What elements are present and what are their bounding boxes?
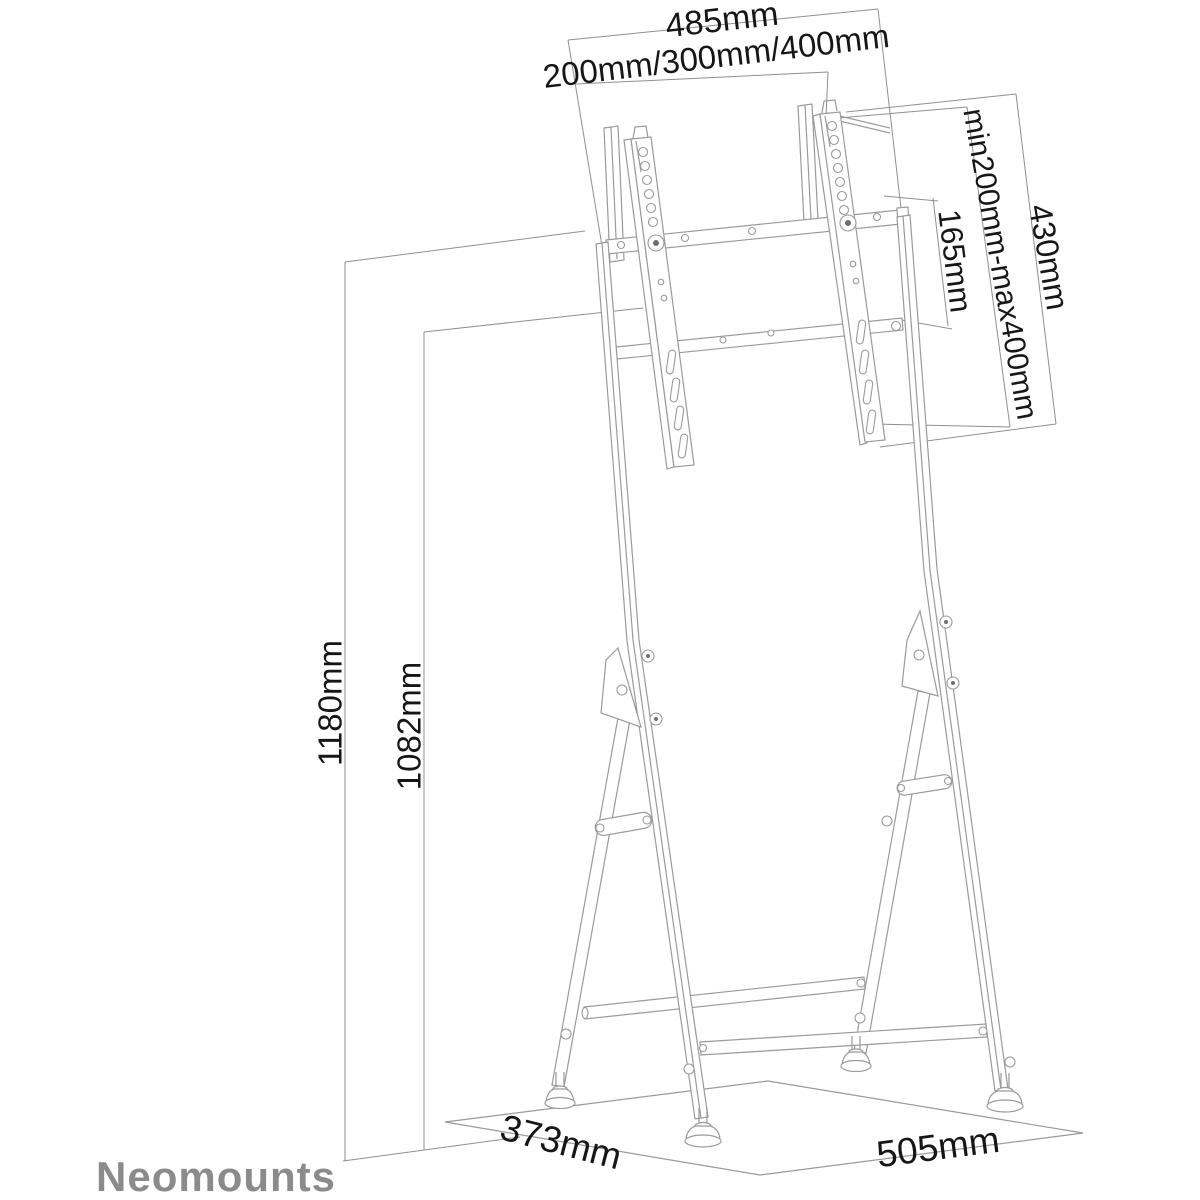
dim-ext bbox=[880, 424, 1056, 447]
dim-ext bbox=[846, 94, 1016, 112]
dim-label-bracket-height: 430mm bbox=[1022, 201, 1076, 312]
dim-label-base-width: 505mm bbox=[874, 1119, 1002, 1175]
dim-ext bbox=[874, 424, 1010, 427]
dim-label-crossbar-gap: 165mm bbox=[931, 208, 978, 315]
left-vesa-rail bbox=[624, 126, 694, 469]
dim-ext bbox=[343, 1137, 520, 1161]
dimension-lines bbox=[343, 9, 1056, 1161]
dim-label-frame-height: 1082mm bbox=[391, 662, 428, 790]
dim-ext bbox=[826, 72, 828, 117]
dim-label-overall-height: 1180mm bbox=[312, 640, 349, 766]
vesa-rails bbox=[624, 100, 885, 469]
technical-drawing-page: 485mm 200mm/300mm/400mm min200mm-max400m… bbox=[0, 0, 1200, 1200]
tv-floor-stand-drawing: 485mm 200mm/300mm/400mm min200mm-max400m… bbox=[0, 0, 1200, 1200]
dim-ext bbox=[884, 196, 938, 201]
right-vesa-rail bbox=[813, 100, 885, 445]
rear-right-leg bbox=[854, 691, 930, 1053]
front-bottom-bar bbox=[700, 1024, 987, 1055]
dim-label-base-depth: 373mm bbox=[496, 1107, 626, 1178]
rear-bottom-bar bbox=[584, 977, 865, 1019]
dim-ext bbox=[838, 107, 967, 118]
brand-logo: Neomounts bbox=[96, 1153, 336, 1200]
dim-ext bbox=[345, 231, 585, 262]
